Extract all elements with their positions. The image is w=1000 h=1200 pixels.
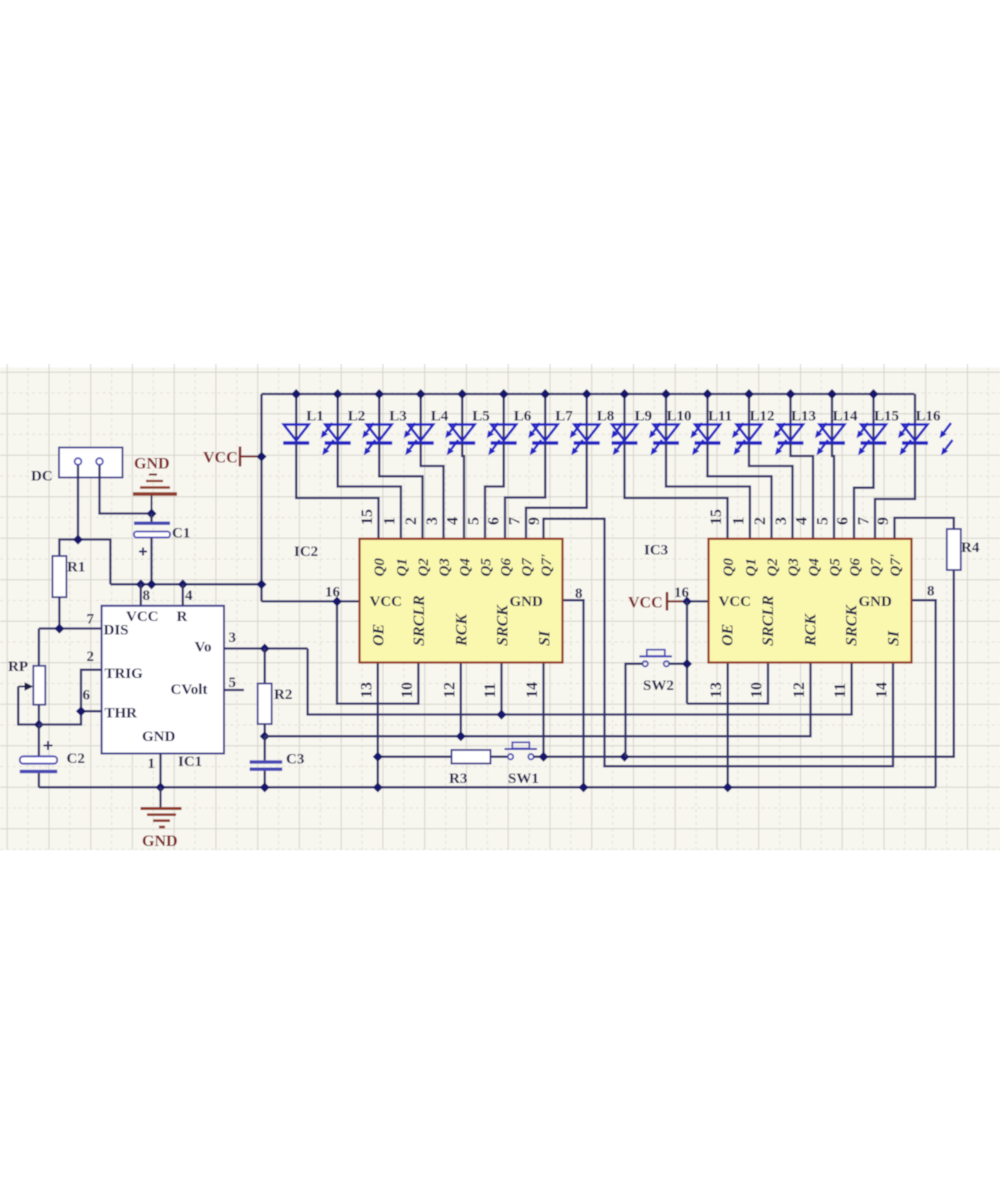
svg-text:DIS: DIS bbox=[104, 623, 129, 639]
svg-text:1: 1 bbox=[148, 756, 156, 772]
svg-text:6: 6 bbox=[486, 517, 503, 525]
svg-text:L2: L2 bbox=[348, 409, 366, 425]
svg-text:L10: L10 bbox=[667, 409, 692, 425]
svg-text:L9: L9 bbox=[635, 409, 653, 425]
svg-text:15: 15 bbox=[359, 509, 376, 525]
svg-text:VCC: VCC bbox=[203, 450, 238, 467]
svg-text:C3: C3 bbox=[286, 752, 304, 768]
svg-text:L8: L8 bbox=[597, 409, 615, 425]
svg-text:OE: OE bbox=[720, 624, 737, 646]
svg-text:VCC: VCC bbox=[370, 594, 403, 610]
svg-text:Vo: Vo bbox=[195, 640, 212, 656]
svg-text:12: 12 bbox=[791, 682, 808, 698]
svg-text:RCK: RCK bbox=[454, 613, 471, 647]
svg-text:SRCLR: SRCLR bbox=[411, 595, 428, 646]
svg-text:Q5: Q5 bbox=[479, 558, 495, 577]
svg-text:SRCLR: SRCLR bbox=[760, 595, 777, 646]
svg-text:Q7': Q7' bbox=[888, 554, 904, 577]
svg-text:13: 13 bbox=[358, 682, 375, 698]
svg-text:3: 3 bbox=[773, 517, 790, 525]
svg-text:L1: L1 bbox=[306, 409, 324, 425]
svg-text:GND: GND bbox=[859, 594, 893, 610]
svg-text:7: 7 bbox=[507, 517, 524, 525]
svg-text:SRCK: SRCK bbox=[495, 604, 512, 646]
svg-text:RP: RP bbox=[8, 659, 28, 675]
svg-text:5: 5 bbox=[815, 517, 832, 525]
svg-text:Q0: Q0 bbox=[372, 558, 388, 577]
svg-text:6: 6 bbox=[83, 688, 91, 704]
svg-text:GND: GND bbox=[134, 456, 170, 473]
svg-text:Q5: Q5 bbox=[828, 558, 844, 577]
svg-text:8: 8 bbox=[575, 586, 583, 602]
svg-text:R1: R1 bbox=[67, 560, 85, 576]
svg-text:Q1: Q1 bbox=[743, 558, 759, 576]
svg-text:4: 4 bbox=[794, 517, 811, 525]
svg-text:OE: OE bbox=[371, 624, 388, 646]
svg-text:13: 13 bbox=[708, 682, 725, 698]
svg-text:SI: SI bbox=[537, 630, 554, 646]
svg-text:Q4: Q4 bbox=[458, 558, 474, 577]
svg-text:14: 14 bbox=[874, 682, 891, 698]
svg-text:VCC: VCC bbox=[126, 609, 159, 625]
svg-text:Q0: Q0 bbox=[721, 558, 737, 577]
svg-text:3: 3 bbox=[229, 630, 237, 646]
svg-text:CVolt: CVolt bbox=[171, 682, 208, 698]
svg-text:C2: C2 bbox=[67, 751, 85, 767]
svg-text:Q2: Q2 bbox=[416, 558, 432, 577]
svg-text:GND: GND bbox=[510, 594, 544, 610]
svg-text:GND: GND bbox=[142, 833, 178, 850]
svg-text:10: 10 bbox=[399, 682, 416, 698]
svg-text:R2: R2 bbox=[274, 687, 292, 703]
svg-text:IC3: IC3 bbox=[644, 543, 668, 559]
svg-text:5: 5 bbox=[229, 675, 237, 691]
svg-text:L11: L11 bbox=[708, 409, 732, 425]
svg-text:8: 8 bbox=[143, 588, 151, 604]
svg-text:L3: L3 bbox=[389, 409, 407, 425]
svg-text:L12: L12 bbox=[750, 409, 775, 425]
svg-text:SI: SI bbox=[886, 630, 903, 646]
svg-text:L4: L4 bbox=[431, 409, 449, 425]
svg-text:L14: L14 bbox=[833, 409, 859, 425]
svg-text:SW1: SW1 bbox=[508, 771, 539, 787]
svg-text:16: 16 bbox=[325, 585, 341, 601]
svg-text:4: 4 bbox=[185, 588, 193, 604]
svg-text:RCK: RCK bbox=[803, 613, 820, 647]
svg-text:2: 2 bbox=[403, 517, 420, 525]
svg-text:Q7: Q7 bbox=[869, 558, 885, 577]
svg-text:7: 7 bbox=[87, 612, 95, 628]
svg-text:Q3: Q3 bbox=[437, 558, 453, 577]
svg-text:R4: R4 bbox=[961, 540, 980, 556]
svg-text:L6: L6 bbox=[514, 409, 532, 425]
svg-text:4: 4 bbox=[445, 517, 462, 525]
svg-text:VCC: VCC bbox=[628, 595, 663, 612]
svg-text:1: 1 bbox=[730, 517, 747, 525]
svg-text:GND: GND bbox=[142, 729, 176, 745]
svg-text:12: 12 bbox=[441, 682, 458, 698]
svg-text:L16: L16 bbox=[916, 409, 942, 425]
svg-text:2: 2 bbox=[87, 649, 95, 665]
svg-text:5: 5 bbox=[466, 517, 483, 525]
svg-text:Q6: Q6 bbox=[499, 558, 515, 577]
svg-text:9: 9 bbox=[875, 517, 892, 525]
svg-text:1: 1 bbox=[381, 517, 398, 525]
svg-text:15: 15 bbox=[708, 509, 725, 525]
svg-text:IC1: IC1 bbox=[178, 754, 202, 770]
svg-text:THR: THR bbox=[105, 706, 138, 722]
svg-text:TRIG: TRIG bbox=[105, 666, 144, 682]
svg-text:R3: R3 bbox=[449, 771, 467, 787]
svg-text:L13: L13 bbox=[791, 409, 816, 425]
svg-text:VCC: VCC bbox=[719, 594, 752, 610]
svg-text:9: 9 bbox=[526, 517, 543, 525]
svg-text:R: R bbox=[177, 609, 188, 625]
svg-text:10: 10 bbox=[749, 682, 766, 698]
svg-text:IC2: IC2 bbox=[294, 544, 318, 560]
svg-text:Q7': Q7' bbox=[539, 554, 555, 577]
svg-text:7: 7 bbox=[856, 517, 873, 525]
svg-text:Q3: Q3 bbox=[786, 558, 802, 577]
svg-text:Q2: Q2 bbox=[765, 558, 781, 577]
svg-text:Q1: Q1 bbox=[394, 558, 410, 576]
svg-text:DC: DC bbox=[31, 469, 53, 485]
svg-text:2: 2 bbox=[752, 517, 769, 525]
svg-text:L15: L15 bbox=[874, 409, 899, 425]
svg-text:L7: L7 bbox=[555, 409, 573, 425]
svg-text:SRCK: SRCK bbox=[844, 604, 861, 646]
svg-text:Q6: Q6 bbox=[848, 558, 864, 577]
svg-text:Q4: Q4 bbox=[807, 558, 823, 577]
svg-text:11: 11 bbox=[832, 683, 849, 698]
svg-text:L5: L5 bbox=[472, 409, 490, 425]
svg-text:Q7: Q7 bbox=[520, 558, 536, 577]
svg-text:SW2: SW2 bbox=[643, 678, 674, 694]
svg-text:14: 14 bbox=[524, 682, 541, 698]
svg-text:8: 8 bbox=[927, 584, 935, 600]
svg-text:3: 3 bbox=[424, 517, 441, 525]
svg-text:6: 6 bbox=[835, 517, 852, 525]
svg-text:C1: C1 bbox=[172, 526, 190, 542]
svg-text:11: 11 bbox=[482, 683, 499, 698]
